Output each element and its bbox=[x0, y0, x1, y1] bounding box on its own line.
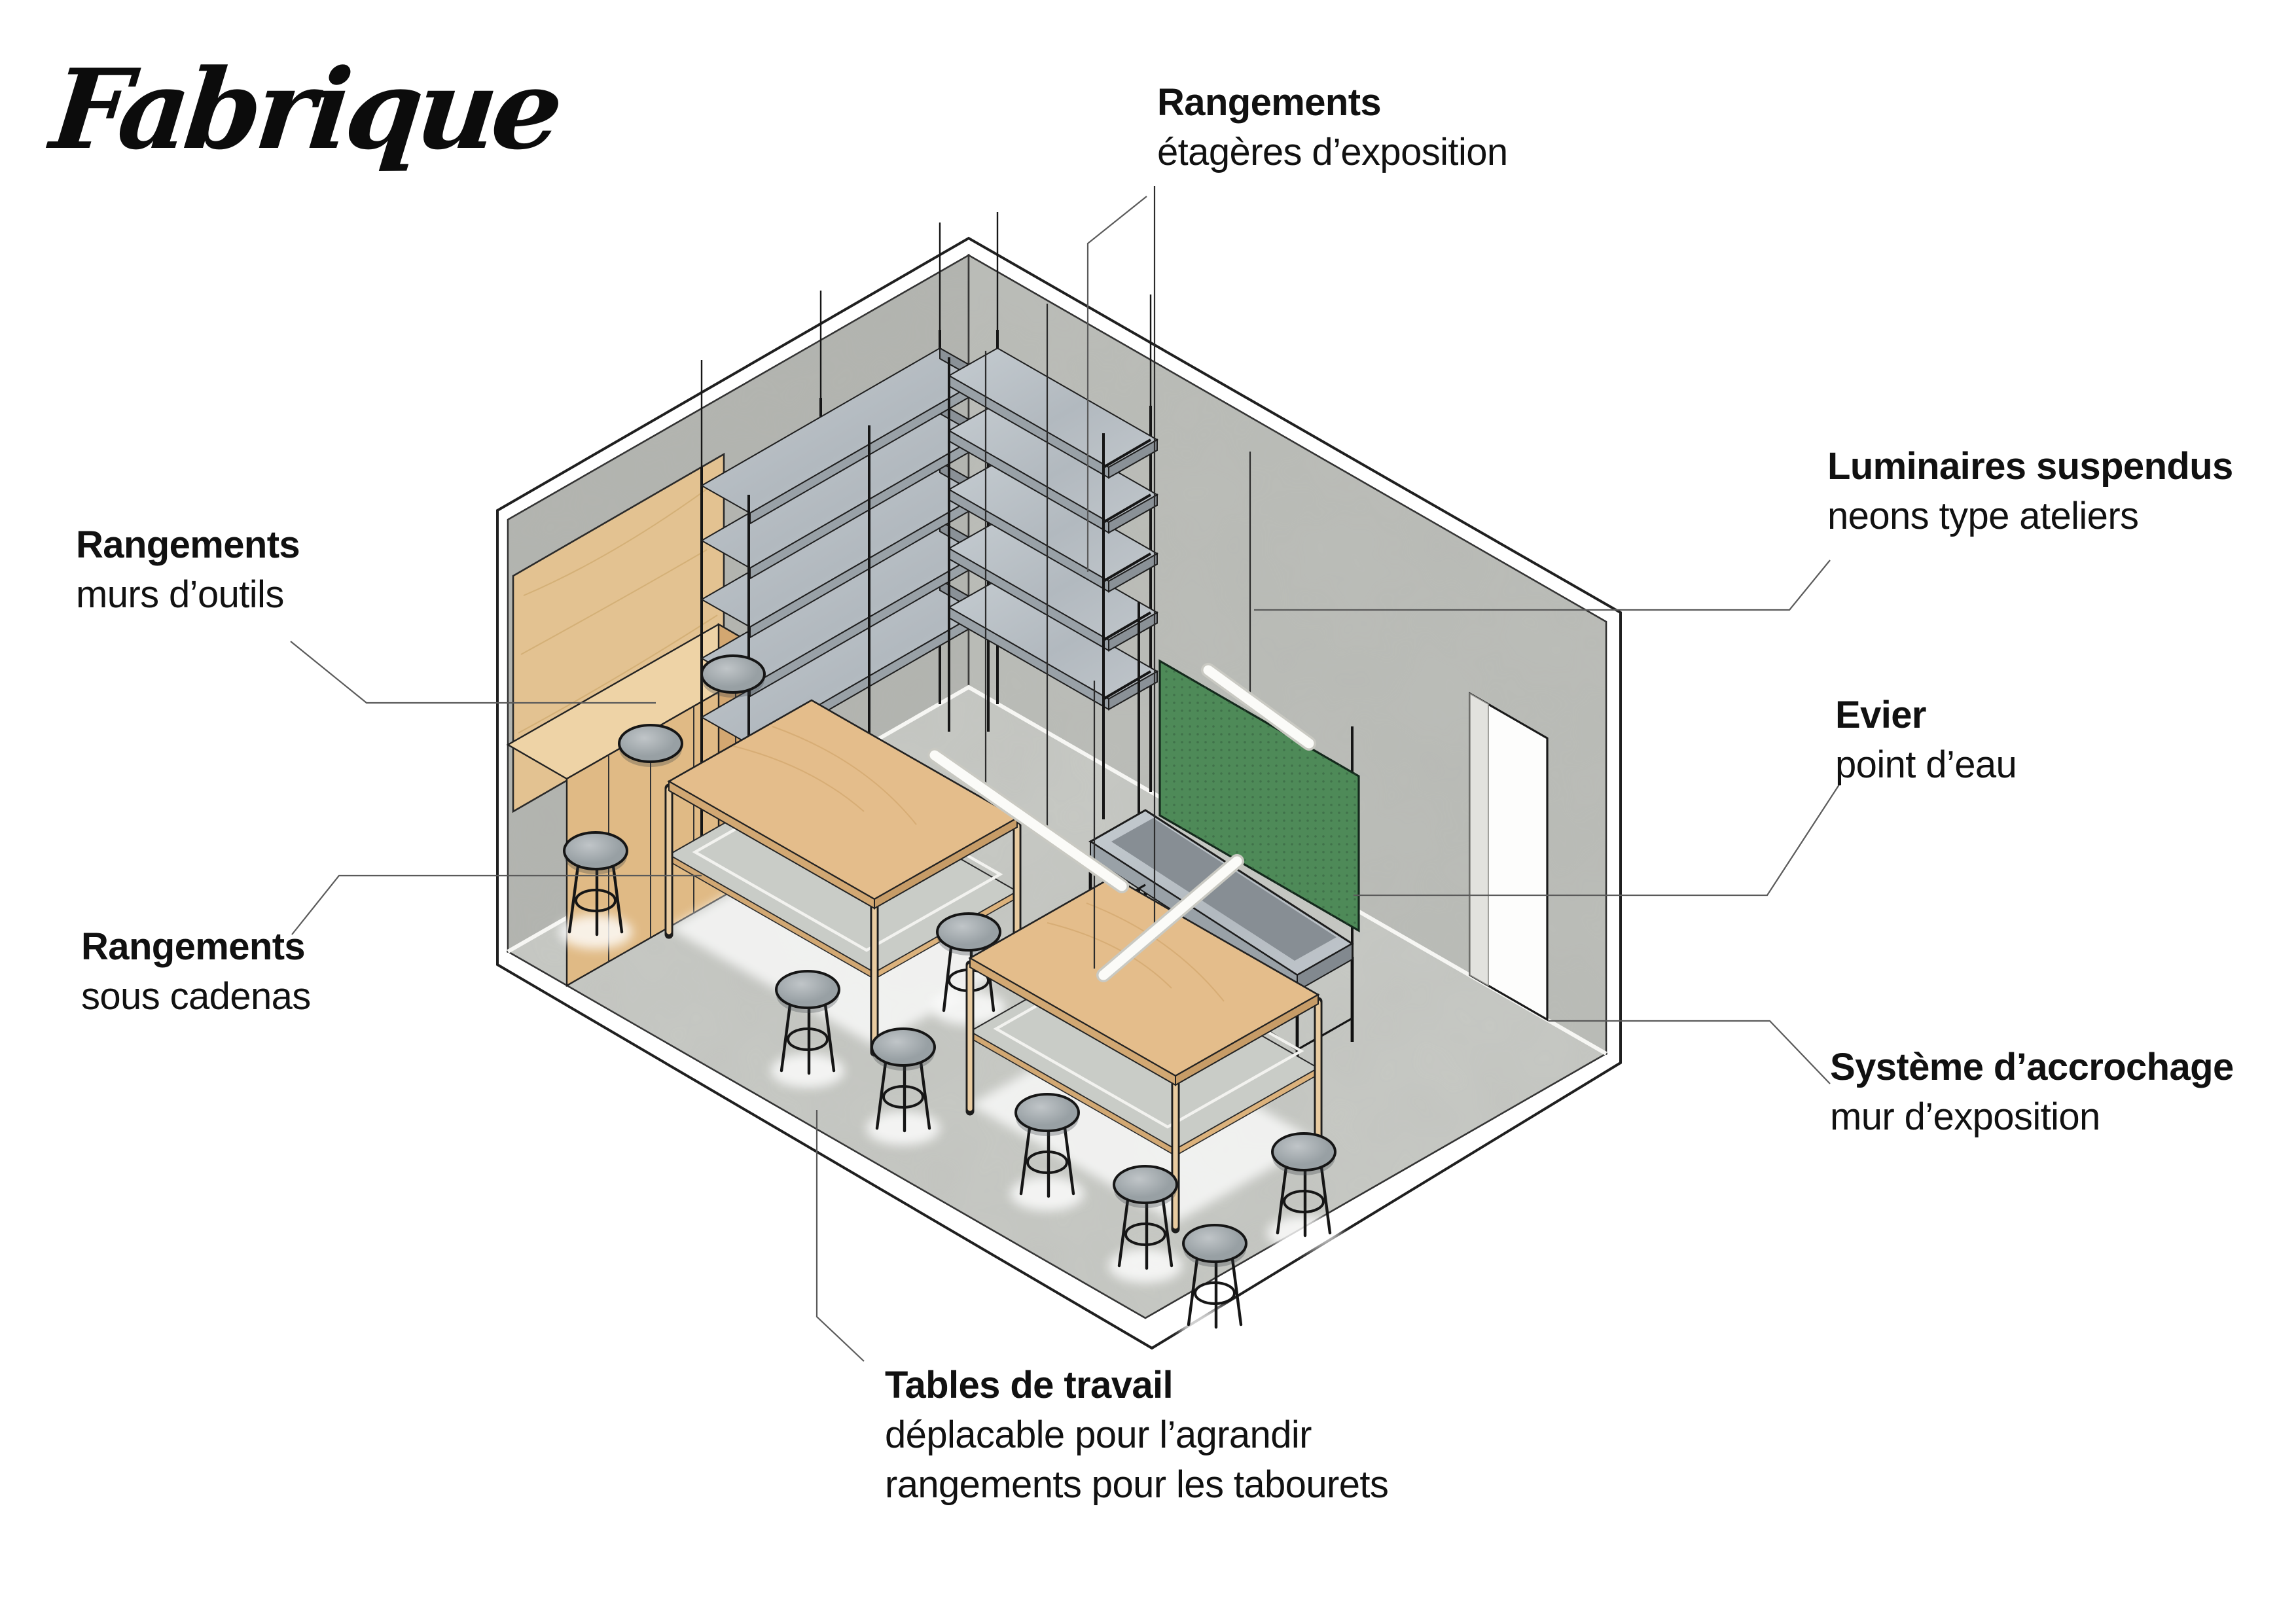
label-luminaires: Luminaires suspendus neons type ateliers bbox=[1827, 442, 2233, 542]
label-cadenas-title: Rangements bbox=[81, 923, 311, 972]
label-etageres-title: Rangements bbox=[1157, 79, 1508, 128]
label-outils-line: murs d’outils bbox=[76, 571, 300, 620]
page: Fabrique Rangements étagères d’expositio… bbox=[0, 0, 2296, 1623]
door-opening bbox=[1470, 694, 1547, 1020]
fabrique-logo: Fabrique bbox=[46, 45, 564, 174]
label-tables-line: rangements pour les tabourets bbox=[885, 1461, 1388, 1510]
label-tables-title: Tables de travail bbox=[885, 1361, 1388, 1411]
label-evier-title: Evier bbox=[1835, 691, 2017, 741]
label-accrochage-title: Système d’accrochage bbox=[1830, 1043, 2234, 1093]
label-tables-line: déplacable pour l’agrandir bbox=[885, 1411, 1388, 1461]
label-etageres: Rangements étagères d’exposition bbox=[1157, 79, 1508, 178]
label-evier: Evier point d’eau bbox=[1835, 691, 2017, 791]
label-cadenas-line: sous cadenas bbox=[81, 972, 311, 1022]
label-outils: Rangements murs d’outils bbox=[76, 521, 300, 620]
label-tables: Tables de travail déplacable pour l’agra… bbox=[885, 1361, 1388, 1510]
label-cadenas: Rangements sous cadenas bbox=[81, 923, 311, 1022]
label-outils-title: Rangements bbox=[76, 521, 300, 571]
stool bbox=[702, 656, 764, 698]
label-luminaires-line: neons type ateliers bbox=[1827, 492, 2233, 542]
label-evier-line: point d’eau bbox=[1835, 741, 2017, 791]
stool bbox=[619, 725, 682, 767]
label-etageres-line: étagères d’exposition bbox=[1157, 128, 1508, 178]
label-accrochage-line: mur d’exposition bbox=[1830, 1093, 2234, 1143]
label-luminaires-title: Luminaires suspendus bbox=[1827, 442, 2233, 492]
label-accrochage: Système d’accrochage mur d’exposition bbox=[1830, 1043, 2234, 1143]
